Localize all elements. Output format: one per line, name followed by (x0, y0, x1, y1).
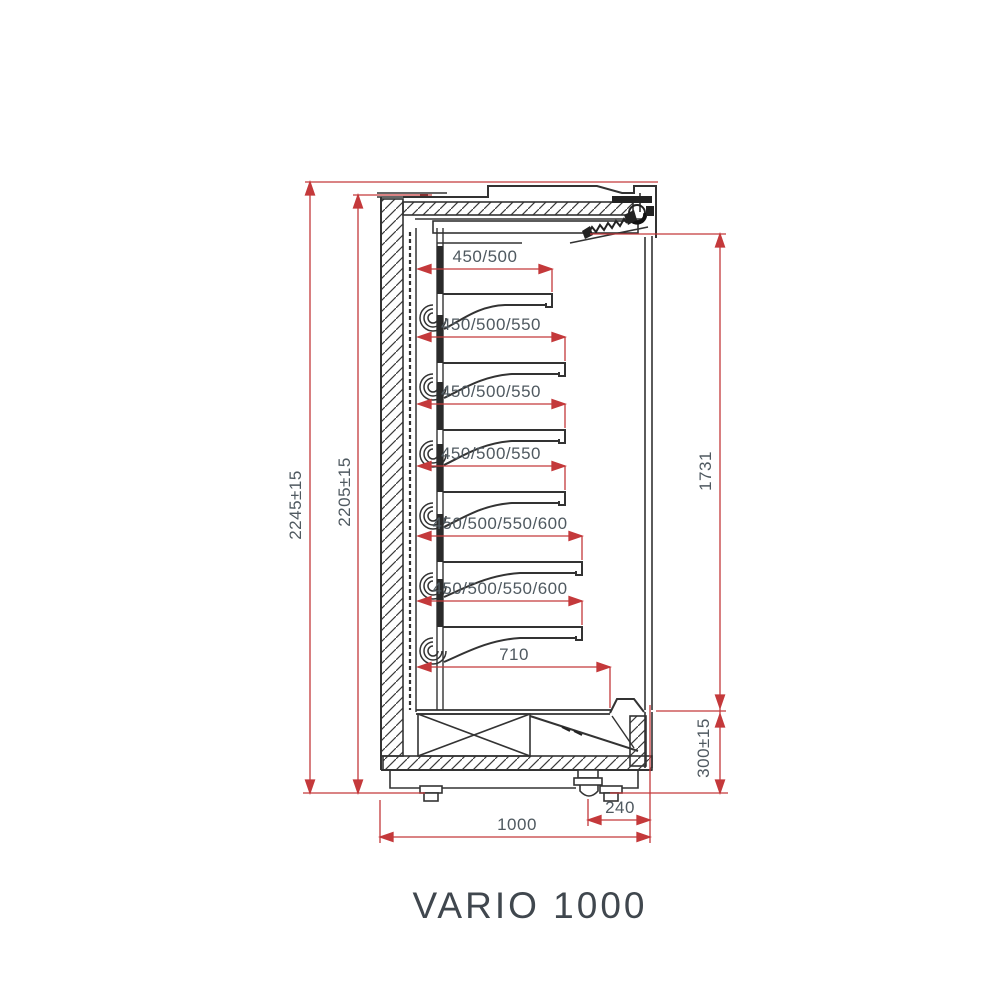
drawing-page: 2245±15 2205±15 1731 300±15 450/500 450/… (0, 0, 1000, 1000)
dimension-lines (303, 182, 728, 843)
air-guide-panel (530, 716, 638, 751)
drain-outlet (574, 770, 602, 796)
cabinet-structure (377, 186, 656, 801)
overall-height-label: 2245±15 (286, 470, 305, 540)
opening-height-label: 1731 (696, 451, 715, 491)
vario-1000-technical-drawing: 2245±15 2205±15 1731 300±15 450/500 450/… (0, 0, 1000, 1000)
shelf-depth-label: 450/500/550 (441, 444, 541, 463)
dim-deck-depth-line (418, 667, 610, 708)
plinth-height-label: 300±15 (694, 718, 713, 778)
drawing-title: VARIO 1000 (413, 885, 648, 926)
base-frame (381, 756, 652, 801)
shelf-depth-label: 450/500/550 (441, 315, 541, 334)
shelf-depth-label: 450/500 (453, 247, 518, 266)
deck-depth-label: 710 (499, 645, 529, 664)
shelf-bracket-clip (420, 638, 446, 664)
body-height-label: 2205±15 (335, 457, 354, 527)
total-depth-label: 1000 (497, 815, 537, 834)
shelf-depth-label: 450/500/550 (441, 382, 541, 401)
shelf-depth-label: 450/500/550/600 (432, 514, 567, 533)
rear-base-depth-label: 240 (605, 798, 635, 817)
shelf-depth-label: 450/500/550/600 (432, 579, 567, 598)
deck-front-bumper (610, 699, 644, 713)
front-glass (645, 236, 652, 710)
